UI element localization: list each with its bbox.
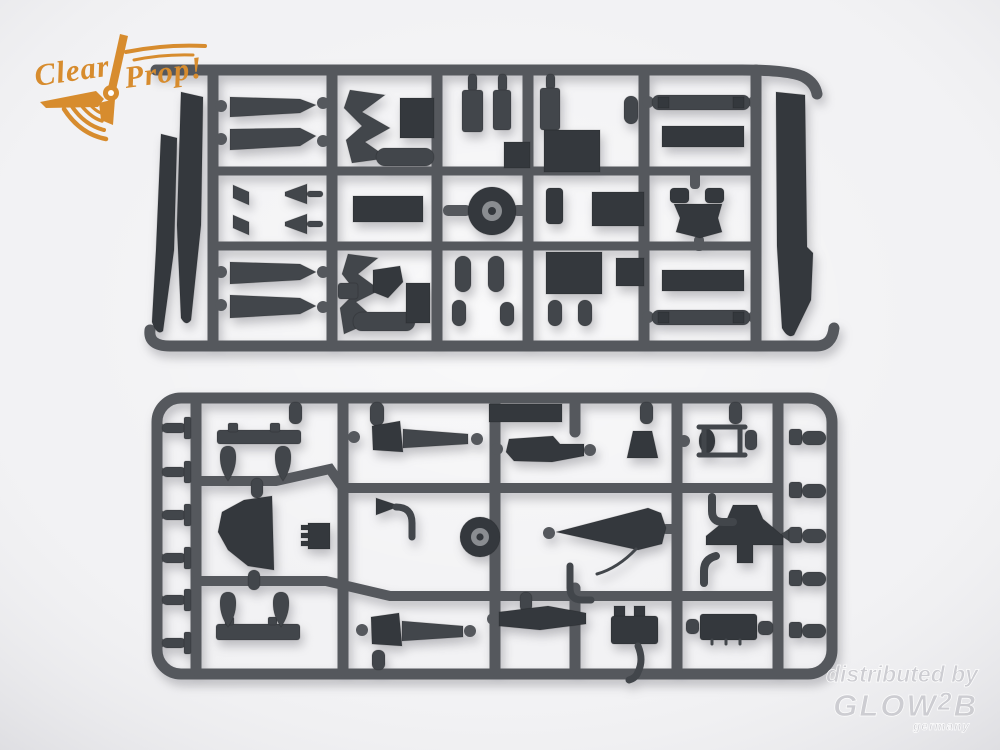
watermark-brand: GLOW2B (833, 688, 978, 723)
wheel-hub-hole (476, 533, 483, 540)
part-funnel (627, 431, 658, 458)
watermark-brand-2: 2 (937, 688, 954, 716)
watermark-distributed-by: distributed by (826, 661, 979, 687)
part-tab (493, 90, 511, 130)
part-drum (699, 429, 715, 453)
photo-canvas: Clear Prop! distributed by GLOW2B german… (0, 0, 1000, 750)
watermark-brand-b: B (954, 688, 978, 723)
part-mount (674, 204, 722, 238)
part-round-bar (376, 148, 434, 166)
part-pod (371, 613, 402, 646)
part-bar (662, 270, 744, 291)
part-pod (372, 421, 403, 452)
part-pill (488, 256, 504, 292)
propeller-hub-hole (108, 90, 114, 96)
part-block (616, 258, 644, 286)
part-block (592, 192, 644, 226)
part-drum (546, 188, 563, 224)
part-block (400, 98, 434, 138)
part-tab (462, 90, 483, 132)
part-block (406, 283, 430, 323)
part-pill (455, 256, 471, 292)
part-block (546, 252, 602, 294)
watermark-brand-glow: GLOW (833, 688, 938, 723)
part-tab (540, 88, 560, 130)
part-exhaust (353, 196, 423, 222)
part-bar (489, 404, 562, 422)
part-engine (611, 616, 658, 644)
distributor-watermark: distributed by GLOW2B germany (826, 661, 979, 733)
watermark-country: germany (912, 719, 970, 733)
part-comb (308, 523, 330, 549)
part-bar (662, 126, 744, 147)
part-block (504, 142, 530, 168)
part-ribbed-block (700, 614, 757, 640)
part-block (544, 130, 600, 172)
wheel-hub-hole (488, 207, 496, 215)
product-photo: Clear Prop! distributed by GLOW2B german… (0, 0, 1000, 750)
